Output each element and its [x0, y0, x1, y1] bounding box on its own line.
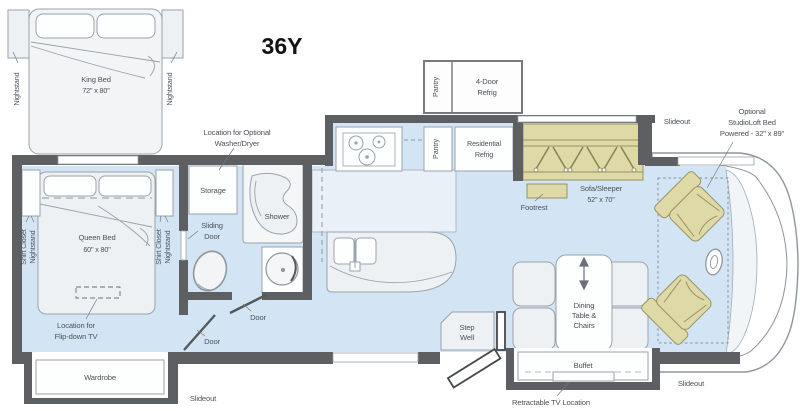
studioloft-line1: Optional: [738, 107, 766, 116]
fourdoor-line2: Refrig: [477, 88, 496, 97]
floorplan-page: 36Y King Bed 72" x 80" Nightstand Nights…: [0, 0, 800, 411]
shirt-closet-nightstand-right: [156, 170, 173, 216]
footrest: [527, 184, 567, 198]
nightstand-left-label: Nightstand: [12, 72, 21, 105]
washer-note-line1: Location for Optional: [204, 128, 271, 137]
sofa-label-line1: Sofa/Sleeper: [580, 184, 623, 193]
flipdown-tv-line1: Location for: [57, 321, 96, 330]
washer-note-line2: Washer/Dryer: [215, 139, 260, 148]
queen-bed-size: 60" x 80": [83, 245, 111, 254]
dining-chair: [513, 308, 555, 350]
slideout-label-top: Slideout: [664, 117, 691, 126]
nightstand-left2-label: Nightstand: [28, 230, 37, 263]
shirt-closet-left-label: Shirt Closet: [19, 229, 28, 265]
sliding-door-line2: Door: [204, 232, 220, 241]
king-bed-label: King Bed: [81, 75, 111, 84]
studioloft-line2: StudioLoft Bed: [728, 118, 776, 127]
sofa-window: [518, 116, 636, 122]
step-well-line1: Step: [459, 323, 474, 332]
door-label-1: Door: [250, 313, 266, 322]
dining-line3: Chairs: [573, 321, 594, 330]
fourdoor-line1: 4-Door: [476, 77, 499, 86]
bath-vanity-sink: [262, 247, 303, 293]
retractable-tv: [553, 372, 614, 381]
pantry-option-label: Pantry: [431, 77, 440, 97]
shirt-closet-right-label: Shirt Closet: [154, 229, 163, 265]
galley-window: [333, 353, 418, 362]
slideout-label-bedroom: Slideout: [190, 394, 217, 403]
residential-refrigerator: [455, 127, 513, 171]
step-well-line2: Well: [460, 333, 474, 342]
bedroom-window: [58, 156, 138, 164]
dining-line2: Table &: [572, 311, 596, 320]
studioloft-line3: Powered - 32" x 89": [720, 129, 785, 138]
shower-label: Shower: [265, 212, 290, 221]
sliding-door-panel: [181, 231, 186, 260]
door-label-2: Door: [204, 337, 220, 346]
nightstand-left: [8, 10, 29, 58]
queen-bed-label: Queen Bed: [78, 233, 115, 242]
footrest-label: Footrest: [521, 203, 549, 212]
rv-floorplan-36y: 36Y King Bed 72" x 80" Nightstand Nights…: [0, 0, 800, 411]
queen-bed: [38, 172, 155, 314]
buffet-label: Buffet: [574, 361, 594, 370]
residential-refrig-line1: Residential: [467, 139, 501, 148]
wardrobe-label: Wardrobe: [84, 373, 116, 382]
dining-line1: Dining: [574, 301, 595, 310]
sofa-label-line2: 52" x 70": [587, 195, 615, 204]
king-bed-size: 72" x 80": [82, 86, 110, 95]
retractable-tv-label: Retractable TV Location: [512, 398, 590, 407]
shirt-closet-nightstand-left: [22, 170, 40, 216]
shower: [243, 163, 303, 243]
residential-refrig-line2: Refrig: [475, 150, 493, 159]
cab-window: [678, 157, 754, 165]
nightstand-right2-label: Nightstand: [163, 230, 172, 263]
flipdown-tv-line2: Flip-down TV: [55, 332, 99, 341]
slideout-label-cab: Slideout: [678, 379, 705, 388]
pantry-label: Pantry: [431, 139, 440, 159]
storage-label: Storage: [200, 186, 226, 195]
entry-door-jamb: [497, 312, 505, 350]
sofa-sleeper: [523, 124, 643, 180]
nightstand-right: [162, 10, 183, 58]
kitchen-island-sink: [327, 232, 456, 292]
model-title: 36Y: [262, 33, 303, 59]
nightstand-right-label: Nightstand: [165, 72, 174, 105]
sliding-door-line1: Sliding: [201, 221, 223, 230]
dining-chair: [513, 262, 555, 306]
